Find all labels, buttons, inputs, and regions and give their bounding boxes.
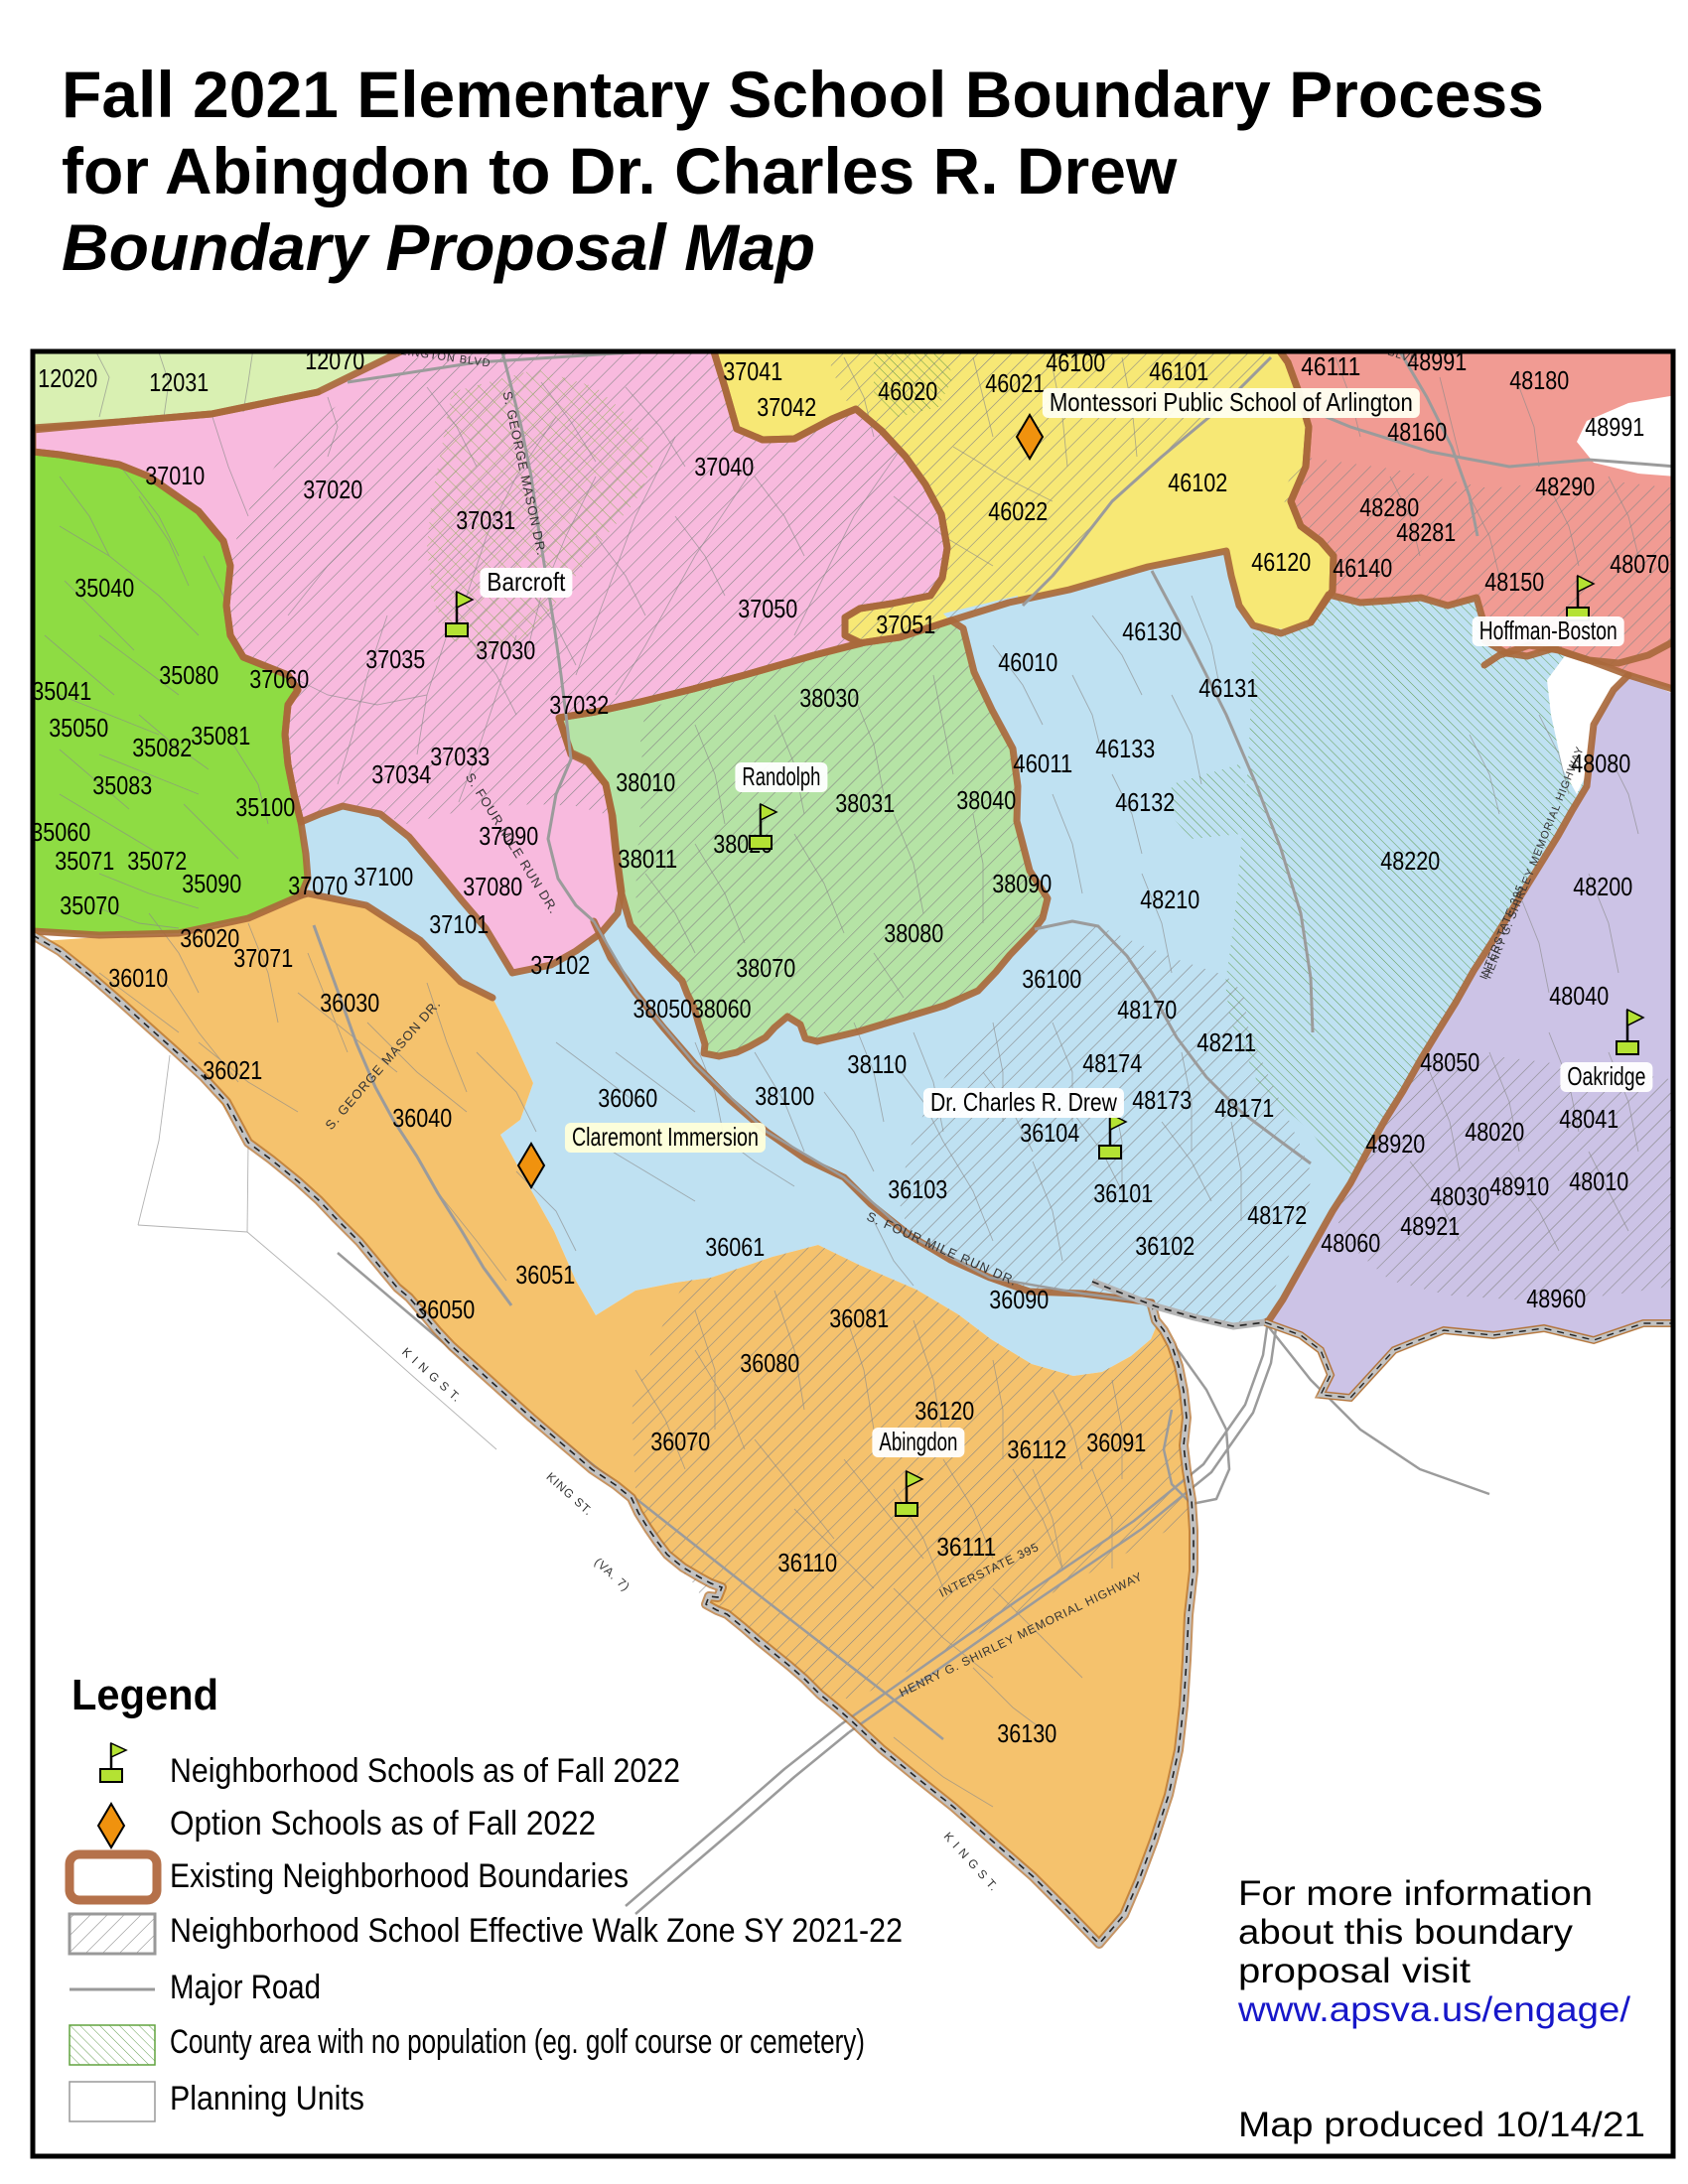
svg-text:36010: 36010 [108, 963, 168, 993]
svg-text:37071: 37071 [233, 943, 293, 973]
svg-text:36112: 36112 [1007, 1434, 1066, 1464]
svg-text:46010: 46010 [998, 647, 1057, 677]
svg-text:46120: 46120 [1251, 547, 1311, 577]
svg-text:37010: 37010 [145, 461, 205, 490]
svg-text:36130: 36130 [997, 1718, 1056, 1748]
svg-text:48172: 48172 [1247, 1200, 1307, 1230]
svg-text:46140: 46140 [1333, 553, 1392, 583]
svg-text:Option Schools as of Fall 2022: Option Schools as of Fall 2022 [170, 1805, 596, 1843]
svg-text:36070: 36070 [650, 1427, 710, 1456]
svg-text:48050: 48050 [1420, 1047, 1479, 1077]
svg-text:Fall 2021 Elementary School Bo: Fall 2021 Elementary School Boundary Pro… [62, 58, 1544, 131]
svg-text:46111: 46111 [1301, 351, 1360, 381]
svg-text:35080: 35080 [159, 660, 218, 690]
svg-text:Boundary Proposal Map: Boundary Proposal Map [62, 210, 815, 284]
svg-text:36101: 36101 [1093, 1178, 1153, 1208]
svg-text:48030: 48030 [1430, 1181, 1489, 1211]
svg-text:48920: 48920 [1365, 1129, 1425, 1159]
svg-text:37100: 37100 [353, 862, 413, 891]
svg-text:35100: 35100 [235, 792, 295, 822]
svg-text:38110: 38110 [847, 1049, 907, 1079]
svg-text:36050: 36050 [415, 1295, 475, 1324]
svg-text:35050: 35050 [49, 713, 108, 743]
svg-text:48180: 48180 [1509, 365, 1569, 395]
svg-text:36020: 36020 [180, 923, 239, 953]
svg-text:36102: 36102 [1135, 1231, 1195, 1261]
svg-text:48170: 48170 [1117, 995, 1177, 1024]
svg-text:Planning Units: Planning Units [170, 2080, 364, 2117]
svg-text:Neighborhood Schools as of Fal: Neighborhood Schools as of Fall 2022 [170, 1752, 680, 1790]
svg-text:35040: 35040 [74, 573, 134, 603]
svg-text:37050: 37050 [738, 594, 797, 623]
svg-text:36051: 36051 [515, 1260, 575, 1290]
svg-text:48910: 48910 [1489, 1171, 1549, 1201]
svg-text:46133: 46133 [1095, 734, 1155, 763]
svg-text:37035: 37035 [365, 644, 425, 674]
svg-text:38090: 38090 [992, 869, 1052, 898]
svg-text:48960: 48960 [1526, 1284, 1586, 1313]
svg-text:37034: 37034 [371, 759, 431, 789]
svg-text:37060: 37060 [249, 664, 309, 694]
svg-text:46131: 46131 [1198, 673, 1258, 703]
svg-text:37101: 37101 [429, 909, 489, 939]
svg-text:36104: 36104 [1020, 1118, 1079, 1148]
svg-text:Abingdon: Abingdon [879, 1427, 957, 1456]
svg-text:36080: 36080 [740, 1348, 799, 1378]
svg-text:Major Road: Major Road [170, 1969, 321, 2006]
svg-text:48020: 48020 [1465, 1117, 1524, 1147]
svg-text:48040: 48040 [1549, 981, 1609, 1011]
svg-text:46022: 46022 [988, 496, 1048, 526]
svg-text:48010: 48010 [1569, 1166, 1628, 1196]
svg-text:35082: 35082 [132, 733, 192, 762]
svg-text:38031: 38031 [835, 788, 895, 818]
svg-text:36081: 36081 [829, 1303, 889, 1333]
svg-text:36060: 36060 [598, 1083, 657, 1113]
svg-text:48060: 48060 [1321, 1228, 1380, 1258]
svg-text:38030: 38030 [799, 683, 859, 713]
svg-text:46020: 46020 [878, 376, 937, 406]
svg-text:36100: 36100 [1022, 964, 1081, 994]
svg-text:35071: 35071 [55, 846, 114, 876]
svg-text:Map produced 10/14/21: Map produced 10/14/21 [1238, 2106, 1645, 2144]
svg-text:35070: 35070 [60, 890, 119, 920]
svg-text:35072: 35072 [127, 846, 187, 876]
svg-text:Oakridge: Oakridge [1567, 1061, 1645, 1091]
svg-text:48041: 48041 [1559, 1104, 1618, 1134]
svg-text:Claremont Immersion: Claremont Immersion [572, 1122, 759, 1152]
svg-text:46021: 46021 [985, 368, 1045, 398]
svg-text:35083: 35083 [92, 770, 152, 800]
svg-text:46101: 46101 [1149, 356, 1208, 386]
svg-text:Randolph: Randolph [742, 761, 820, 791]
svg-text:38080: 38080 [884, 918, 943, 948]
svg-text:48160: 48160 [1387, 417, 1447, 447]
svg-text:For more information: For more information [1238, 1874, 1593, 1913]
svg-text:37070: 37070 [288, 871, 348, 900]
svg-text:35081: 35081 [191, 721, 250, 751]
svg-text:37051: 37051 [876, 610, 935, 639]
svg-text:36110: 36110 [777, 1548, 837, 1577]
svg-text:46132: 46132 [1115, 787, 1175, 817]
svg-text:48991: 48991 [1585, 412, 1644, 442]
svg-text:48921: 48921 [1400, 1211, 1460, 1241]
svg-text:www.apsva.us/engage/: www.apsva.us/engage/ [1237, 1990, 1630, 2029]
svg-text:37020: 37020 [303, 475, 362, 504]
svg-text:48171: 48171 [1214, 1093, 1274, 1123]
svg-text:for Abingdon to Dr. Charles R.: for Abingdon to Dr. Charles R. Drew [62, 134, 1178, 207]
svg-text:36091: 36091 [1086, 1428, 1146, 1457]
svg-text:37080: 37080 [463, 872, 522, 901]
svg-text:Barcroft: Barcroft [487, 567, 566, 597]
svg-text:48281: 48281 [1396, 517, 1456, 547]
svg-text:48150: 48150 [1484, 567, 1544, 597]
svg-text:12031: 12031 [149, 367, 209, 397]
svg-text:Dr. Charles R. Drew: Dr. Charles R. Drew [930, 1087, 1117, 1117]
svg-text:3805038060: 3805038060 [633, 994, 752, 1024]
svg-text:about this boundary: about this boundary [1238, 1913, 1574, 1952]
svg-text:38011: 38011 [618, 844, 677, 874]
svg-text:proposal visit: proposal visit [1238, 1952, 1471, 1990]
svg-text:36111: 36111 [936, 1532, 996, 1562]
svg-text:36061: 36061 [705, 1232, 765, 1262]
svg-text:37031: 37031 [456, 505, 515, 535]
svg-text:37033: 37033 [430, 742, 490, 771]
svg-text:Neighborhood School Effective: Neighborhood School Effective Walk Zone … [170, 1912, 903, 1950]
svg-text:36103: 36103 [888, 1174, 947, 1204]
svg-text:36021: 36021 [203, 1055, 262, 1085]
svg-text:37041: 37041 [723, 356, 782, 386]
svg-text:38040: 38040 [956, 785, 1016, 815]
svg-text:12020: 12020 [38, 363, 97, 393]
svg-text:37042: 37042 [757, 392, 816, 422]
svg-text:35090: 35090 [182, 869, 241, 898]
svg-text:36040: 36040 [392, 1103, 452, 1133]
svg-text:County area with no population: County area with no population (eg. golf… [170, 2023, 865, 2061]
svg-text:48220: 48220 [1380, 846, 1440, 876]
svg-text:36090: 36090 [989, 1285, 1049, 1314]
svg-text:Legend: Legend [71, 1671, 218, 1719]
svg-text:38100: 38100 [755, 1081, 814, 1111]
svg-text:37040: 37040 [694, 452, 754, 481]
svg-text:48173: 48173 [1132, 1085, 1192, 1115]
svg-text:37030: 37030 [476, 635, 535, 665]
svg-text:46102: 46102 [1168, 468, 1227, 497]
svg-text:46011: 46011 [1013, 749, 1072, 778]
svg-text:36120: 36120 [914, 1396, 974, 1426]
svg-text:35041: 35041 [32, 676, 91, 706]
svg-text:Existing Neighborhood Boundari: Existing Neighborhood Boundaries [170, 1857, 629, 1895]
svg-text:48211: 48211 [1196, 1027, 1256, 1057]
svg-text:48070: 48070 [1610, 549, 1669, 579]
svg-text:46130: 46130 [1122, 616, 1182, 646]
svg-text:38010: 38010 [616, 767, 675, 797]
svg-text:37032: 37032 [549, 690, 609, 720]
svg-text:48200: 48200 [1573, 872, 1632, 901]
svg-text:48210: 48210 [1140, 885, 1199, 914]
svg-text:36030: 36030 [320, 988, 379, 1018]
svg-text:35060: 35060 [31, 817, 90, 847]
svg-text:48174: 48174 [1082, 1048, 1142, 1078]
svg-text:48290: 48290 [1535, 472, 1595, 501]
svg-text:Montessori Public School of Ar: Montessori Public School of Arlington [1050, 387, 1413, 417]
svg-text:38070: 38070 [736, 953, 795, 983]
svg-text:37102: 37102 [530, 950, 590, 980]
svg-text:Hoffman-Boston: Hoffman-Boston [1479, 615, 1618, 645]
